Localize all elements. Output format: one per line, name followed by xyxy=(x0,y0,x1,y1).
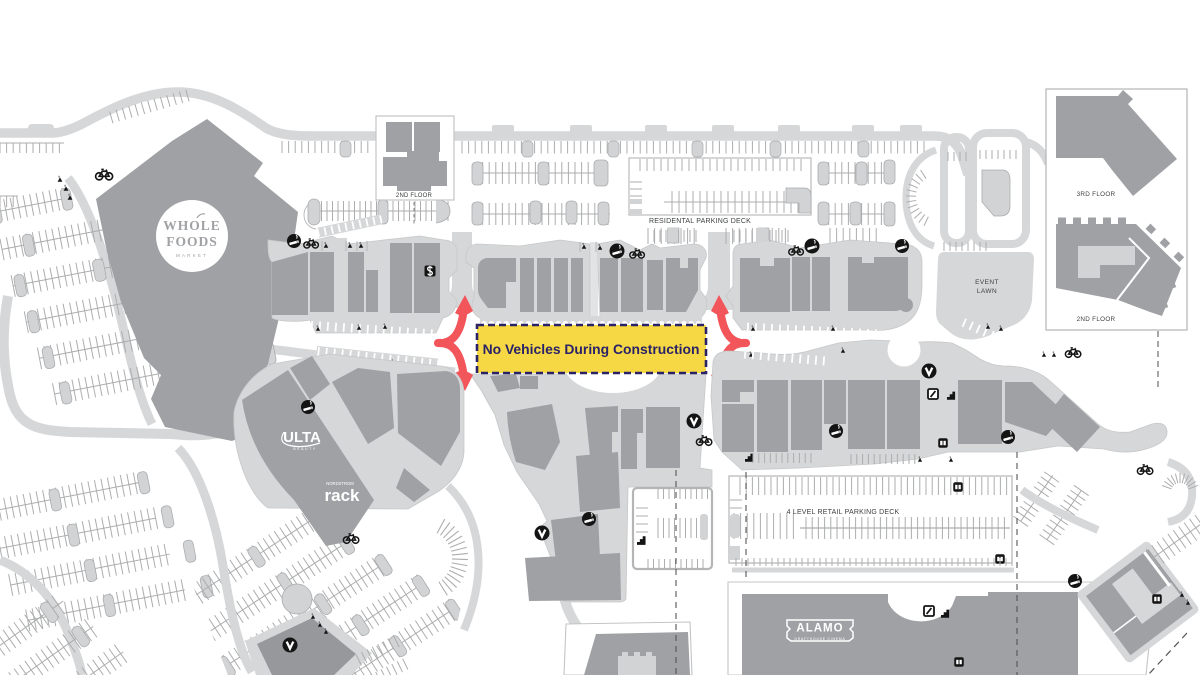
svg-text:MARKET: MARKET xyxy=(176,253,208,258)
svg-text:WHOLE: WHOLE xyxy=(163,218,221,233)
svg-text:rack: rack xyxy=(325,486,361,505)
svg-text:ULTA: ULTA xyxy=(283,429,321,446)
svg-text:3RD FLOOR: 3RD FLOOR xyxy=(1077,191,1116,198)
svg-text:BEAUTY: BEAUTY xyxy=(293,447,316,451)
svg-text:LAWN: LAWN xyxy=(977,288,997,295)
svg-text:2ND FLOOR: 2ND FLOOR xyxy=(1077,316,1116,323)
svg-text:FOODS: FOODS xyxy=(166,234,218,249)
svg-text:EVENT: EVENT xyxy=(975,279,999,286)
svg-text:RESIDENTAL PARKING DECK: RESIDENTAL PARKING DECK xyxy=(649,218,751,225)
svg-text:No Vehicles During Constructio: No Vehicles During Construction xyxy=(483,341,700,357)
svg-text:4 LEVEL RETAIL PARKING DECK: 4 LEVEL RETAIL PARKING DECK xyxy=(787,509,900,516)
svg-text:ALAMO: ALAMO xyxy=(796,623,843,635)
svg-text:DRAFTHOUSE CINEMA: DRAFTHOUSE CINEMA xyxy=(794,637,845,641)
svg-text:2ND FLOOR: 2ND FLOOR xyxy=(396,193,433,199)
